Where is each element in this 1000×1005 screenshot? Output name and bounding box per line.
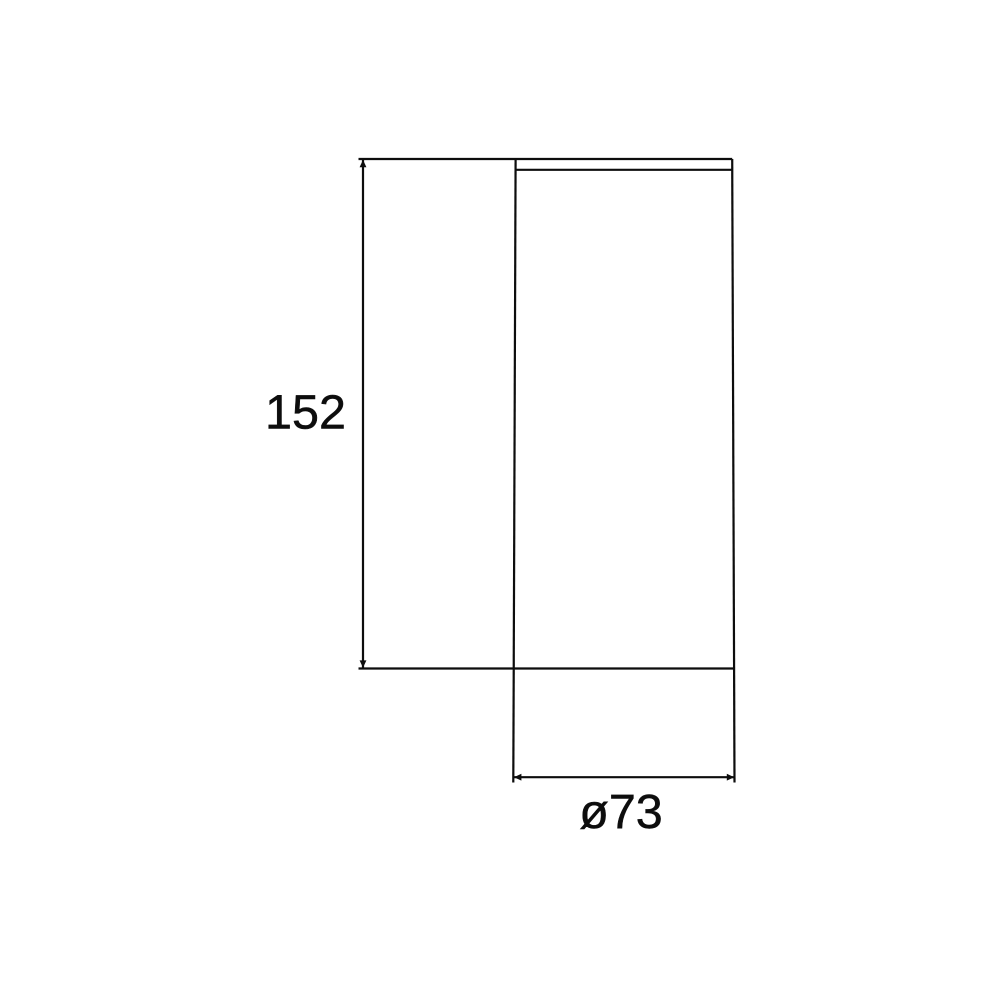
svg-text:ø73: ø73 [579, 785, 663, 839]
svg-text:152: 152 [265, 386, 346, 440]
